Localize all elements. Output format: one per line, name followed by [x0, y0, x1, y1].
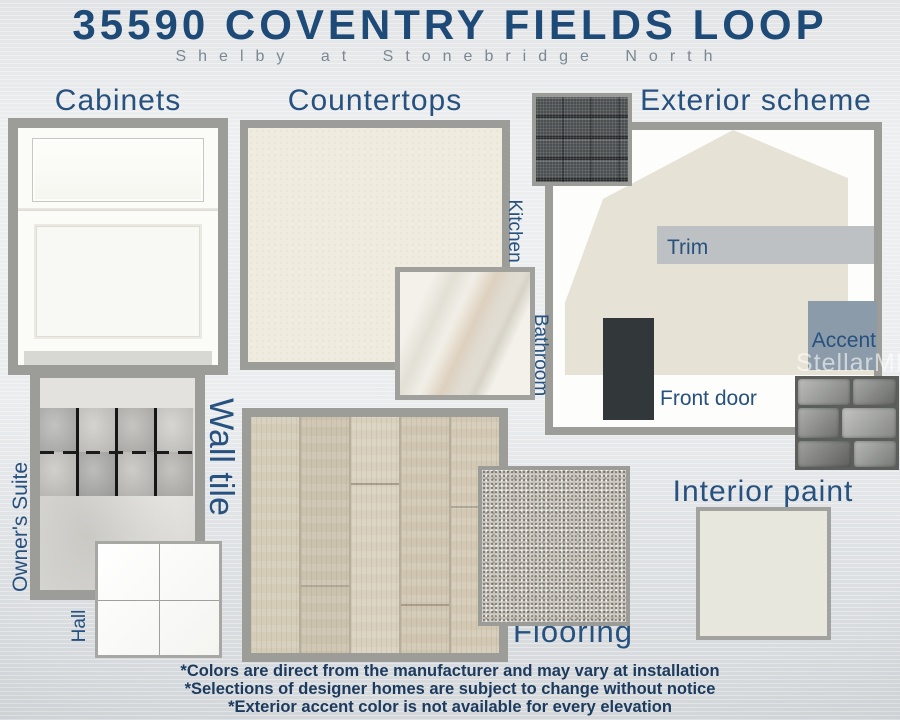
- stone-block: [798, 441, 851, 467]
- cabinet-base-strip: [24, 351, 212, 365]
- cabinet-swatch: [8, 118, 228, 375]
- flooring-plank: [401, 417, 451, 653]
- stone-block: [853, 379, 896, 405]
- tile-top-band: [40, 378, 195, 408]
- carpet-swatch: [478, 466, 630, 626]
- cabinets-label: Cabinets: [8, 84, 228, 118]
- page-subtitle: Shelby at Stonebridge North: [0, 48, 900, 66]
- cabinet-seam: [18, 208, 218, 211]
- disclaimer-line: *Selections of designer homes are subjec…: [0, 680, 900, 698]
- stone-block: [842, 408, 896, 439]
- owners-suite-label: Owner's Suite: [9, 447, 33, 607]
- stone-block: [798, 408, 839, 439]
- disclaimer-line: *Exterior accent color is not available …: [0, 698, 900, 716]
- mosaic-grout-dashed-line: [40, 451, 193, 454]
- hall-label: Hall: [69, 591, 91, 661]
- trim-swatch: Trim: [657, 226, 874, 264]
- mosaic-tile: [157, 452, 193, 496]
- mosaic-tile: [157, 408, 193, 452]
- stellar-mls-watermark: StellarMLS: [796, 349, 900, 378]
- front-door-swatch: [603, 318, 654, 420]
- bathroom-label: Bathroom: [529, 295, 551, 415]
- mosaic-tile: [79, 452, 115, 496]
- design-board: 35590 COVENTRY FIELDS LOOP Shelby at Sto…: [0, 0, 900, 720]
- disclaimer-line: *Colors are direct from the manufacturer…: [0, 662, 900, 680]
- mosaic-tile: [40, 452, 76, 496]
- interior-paint-label: Interior paint: [613, 475, 900, 509]
- stone-block: [798, 379, 850, 405]
- mosaic-tile: [40, 408, 76, 452]
- wood-flooring-swatch: [242, 408, 508, 662]
- hall-tile-swatch: [95, 541, 222, 658]
- kitchen-label: Kitchen: [503, 176, 525, 286]
- wall-tile-label: Wall tile: [201, 372, 241, 542]
- flooring-plank: [251, 417, 301, 653]
- cabinet-drawer-front: [32, 138, 204, 202]
- bathroom-countertop-swatch: [395, 267, 535, 400]
- mosaic-tile: [79, 408, 115, 452]
- mosaic-tile: [118, 408, 154, 452]
- flooring-plank: [351, 417, 401, 653]
- interior-paint-swatch: [696, 507, 831, 640]
- trim-label: Trim: [667, 236, 708, 260]
- front-door-label: Front door: [660, 387, 757, 411]
- stone-block: [854, 441, 896, 467]
- flooring-plank: [301, 417, 351, 653]
- exterior-scheme-label: Exterior scheme: [606, 84, 900, 118]
- hall-tile-grout-line: [98, 600, 219, 601]
- page-title: 35590 COVENTRY FIELDS LOOP: [0, 2, 900, 48]
- stone-accent-swatch: [795, 376, 899, 470]
- roof-shingle-swatch: [532, 93, 632, 186]
- mosaic-tile: [118, 452, 154, 496]
- countertops-label: Countertops: [240, 84, 510, 118]
- cabinet-door-panel: [34, 224, 202, 339]
